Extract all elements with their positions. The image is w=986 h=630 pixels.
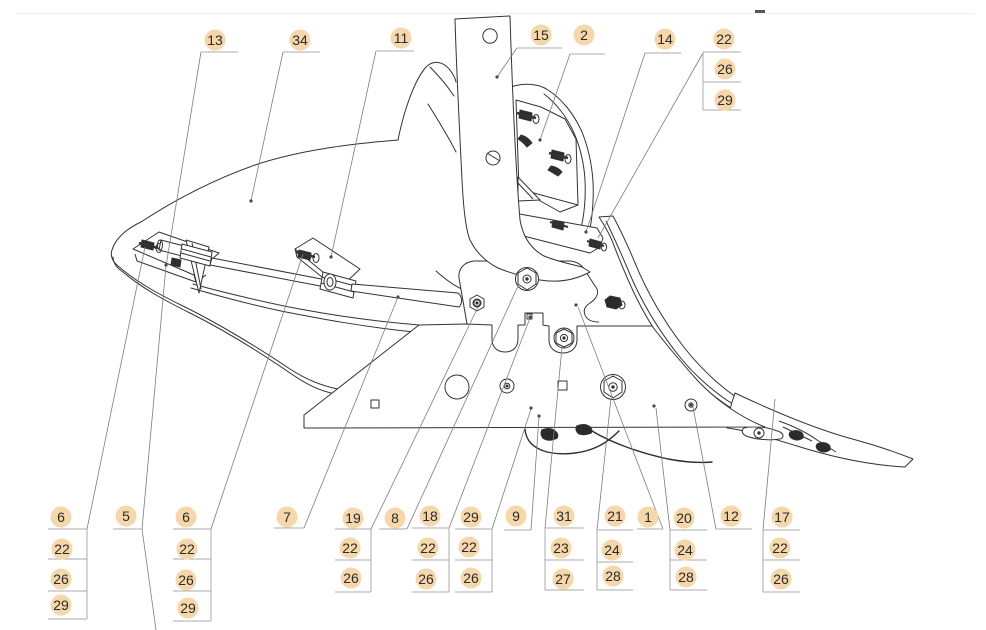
- svg-text:9: 9: [512, 508, 520, 524]
- svg-text:22: 22: [420, 540, 436, 556]
- svg-text:20: 20: [676, 510, 692, 526]
- svg-text:22: 22: [179, 541, 195, 557]
- svg-text:22: 22: [716, 31, 732, 47]
- svg-text:26: 26: [463, 570, 479, 586]
- svg-text:22: 22: [54, 541, 70, 557]
- svg-text:26: 26: [178, 572, 194, 588]
- svg-text:26: 26: [53, 571, 69, 587]
- svg-text:22: 22: [772, 540, 788, 556]
- svg-text:5: 5: [122, 508, 130, 524]
- svg-text:12: 12: [723, 508, 739, 524]
- svg-text:18: 18: [422, 508, 438, 524]
- svg-text:24: 24: [604, 542, 620, 558]
- svg-text:11: 11: [394, 30, 409, 46]
- svg-text:26: 26: [717, 61, 733, 77]
- svg-text:29: 29: [180, 600, 196, 616]
- svg-text:13: 13: [207, 32, 223, 48]
- svg-text:29: 29: [717, 92, 733, 108]
- svg-text:28: 28: [605, 568, 621, 584]
- svg-text:8: 8: [391, 510, 399, 526]
- svg-text:26: 26: [418, 571, 434, 587]
- svg-text:17: 17: [774, 509, 790, 525]
- svg-text:24: 24: [677, 542, 693, 558]
- svg-text:31: 31: [556, 508, 572, 524]
- svg-text:22: 22: [461, 539, 477, 555]
- svg-text:2: 2: [580, 27, 588, 43]
- svg-text:29: 29: [53, 597, 69, 613]
- svg-text:34: 34: [292, 32, 308, 48]
- svg-text:21: 21: [607, 508, 623, 524]
- svg-text:6: 6: [182, 509, 190, 525]
- svg-text:28: 28: [678, 569, 694, 585]
- svg-text:22: 22: [342, 540, 358, 556]
- svg-text:26: 26: [773, 571, 789, 587]
- svg-text:14: 14: [657, 31, 673, 47]
- svg-text:23: 23: [553, 540, 569, 556]
- svg-text:26: 26: [343, 570, 359, 586]
- svg-text:1: 1: [644, 509, 652, 525]
- svg-text:19: 19: [345, 510, 361, 526]
- svg-text:27: 27: [555, 571, 571, 587]
- svg-text:29: 29: [463, 509, 479, 525]
- svg-text:6: 6: [57, 509, 65, 525]
- svg-text:15: 15: [533, 27, 549, 43]
- svg-text:7: 7: [283, 509, 291, 525]
